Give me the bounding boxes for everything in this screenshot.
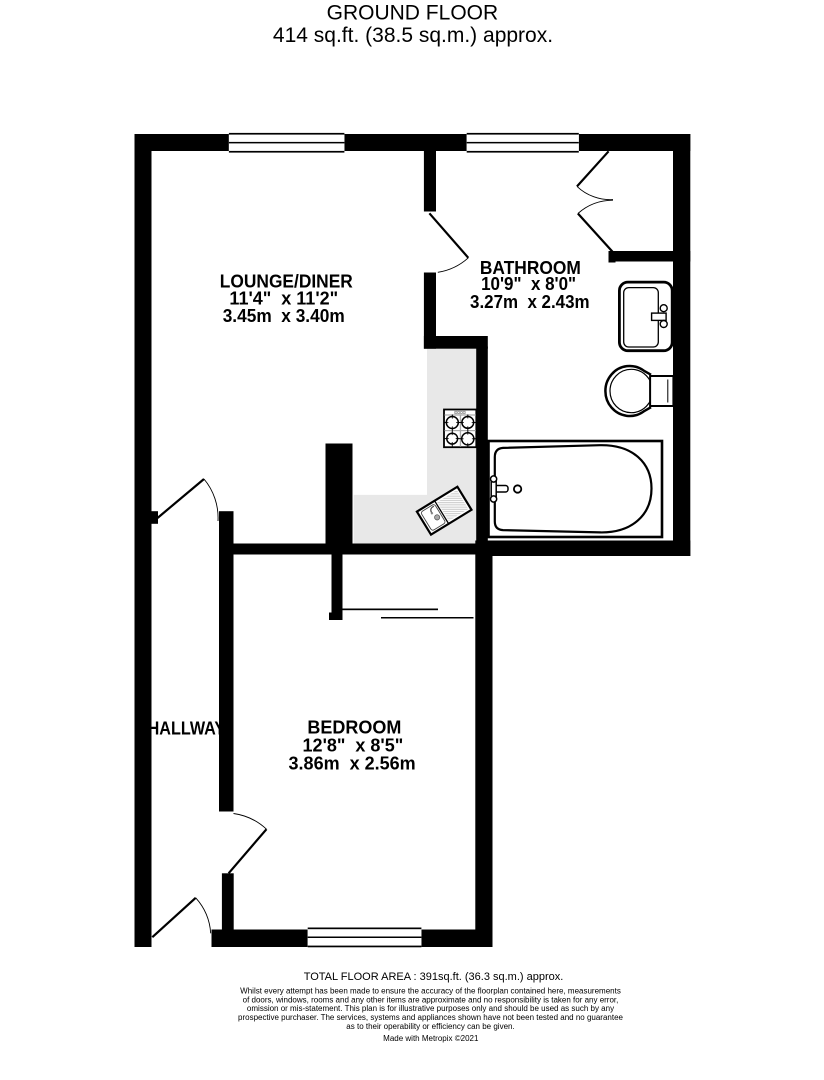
- svg-text:prospective purchaser. The ser: prospective purchaser. The services, sys…: [238, 1013, 624, 1022]
- svg-text:Made with Metropix ©2021: Made with Metropix ©2021: [383, 1034, 479, 1043]
- svg-text:TOTAL FLOOR AREA : 391sq.ft. (: TOTAL FLOOR AREA : 391sq.ft. (36.3 sq.m.…: [304, 971, 564, 983]
- svg-text:12'8" x 8'5": 12'8" x 8'5": [303, 736, 404, 756]
- svg-text:3.86m x 2.56m: 3.86m x 2.56m: [289, 754, 416, 774]
- svg-text:of doors, windows, rooms and a: of doors, windows, rooms and any other i…: [243, 995, 619, 1004]
- svg-text:GROUND FLOOR: GROUND FLOOR: [327, 2, 499, 25]
- svg-text:414 sq.ft. (38.5 sq.m.) approx: 414 sq.ft. (38.5 sq.m.) approx.: [273, 24, 553, 47]
- svg-text:BEDROOM: BEDROOM: [307, 717, 401, 737]
- svg-text:3.45m x 3.40m: 3.45m x 3.40m: [223, 306, 345, 326]
- svg-text:HALLWAY: HALLWAY: [148, 719, 226, 739]
- svg-text:as to their operability or eff: as to their operability or efficiency ca…: [346, 1022, 514, 1031]
- svg-text:Whilst every attempt has been: Whilst every attempt has been made to en…: [240, 987, 621, 996]
- svg-text:3.27m x 2.43m: 3.27m x 2.43m: [470, 292, 590, 312]
- svg-text:10'9" x 8'0": 10'9" x 8'0": [481, 274, 576, 294]
- svg-text:omission or mis-statement. Thi: omission or mis-statement. This plan is …: [247, 1004, 614, 1013]
